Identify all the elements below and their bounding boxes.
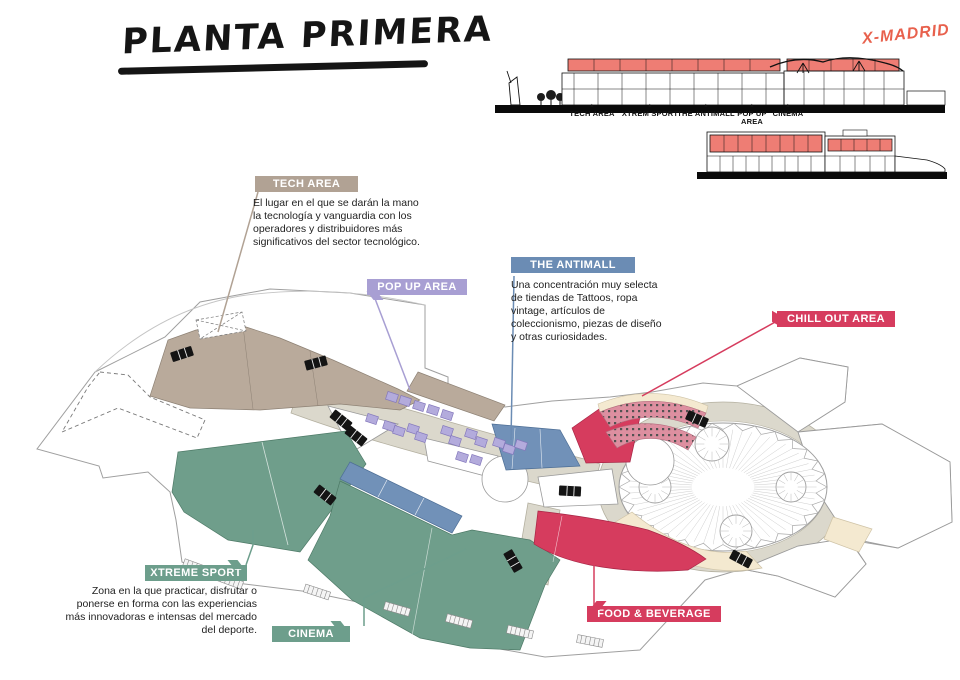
xtreme-sport-description: Zona en la que practicar, disfrutar o po… — [55, 585, 257, 637]
poster-canvas: PLANTA PRIMERA X-MADRID ▲ TECH AREA ▲ — [0, 0, 960, 680]
escalator-icon — [559, 485, 581, 496]
popup-area-chip: POP UP AREA — [367, 279, 467, 295]
xtreme-sport-chip: XTREME SPORT — [145, 565, 247, 581]
antimall-description: Una concentración muy selecta de tiendas… — [511, 279, 666, 344]
cinema-chip: CINEMA — [272, 626, 350, 642]
floor-plan — [0, 0, 960, 680]
tech-area-description: El lugar en el que se darán la mano la t… — [253, 197, 426, 249]
antimall-chip: THE ANTIMALL — [511, 257, 635, 273]
food-beverage-chip: FOOD & BEVERAGE — [587, 606, 721, 622]
chillout-chip: CHILL OUT AREA — [777, 311, 895, 327]
tech-area-chip: TECH AREA — [255, 176, 358, 192]
